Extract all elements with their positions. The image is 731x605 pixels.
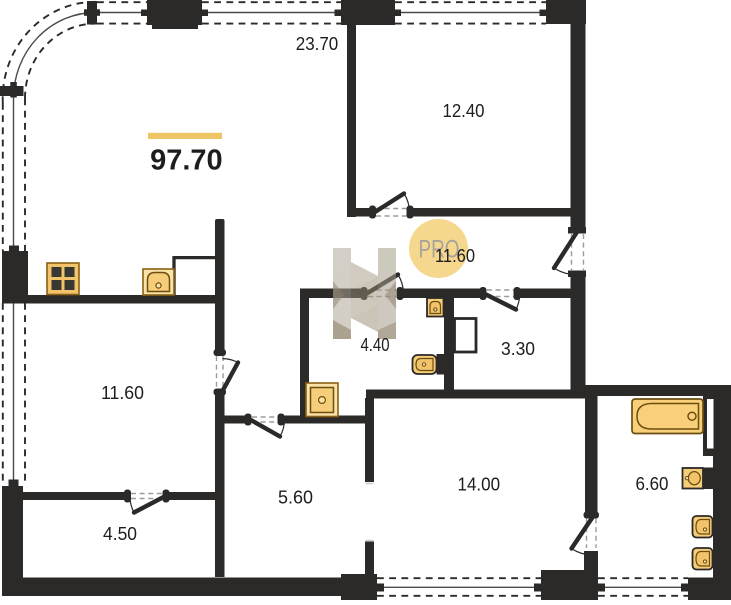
- svg-text:4.40: 4.40: [361, 335, 390, 355]
- svg-text:14.00: 14.00: [458, 475, 501, 495]
- svg-text:11.60: 11.60: [435, 246, 475, 266]
- svg-text:97.70: 97.70: [150, 145, 223, 177]
- svg-text:4.50: 4.50: [103, 524, 137, 544]
- svg-text:12.40: 12.40: [443, 101, 485, 121]
- svg-text:5.60: 5.60: [278, 488, 313, 508]
- svg-text:11.60: 11.60: [101, 383, 144, 403]
- svg-text:3.30: 3.30: [501, 339, 535, 359]
- svg-text:6.60: 6.60: [636, 474, 669, 494]
- svg-text:23.70: 23.70: [296, 34, 339, 54]
